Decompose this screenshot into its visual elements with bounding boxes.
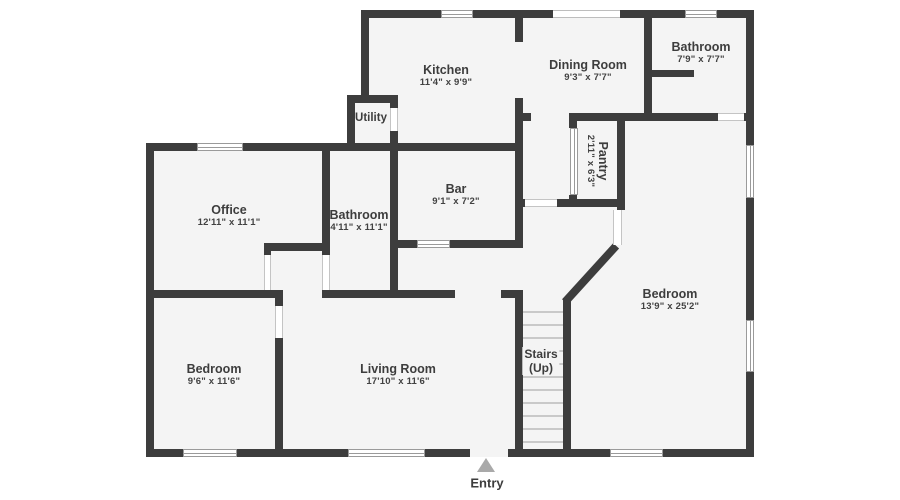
wall-bar-bottom	[390, 240, 417, 248]
wall-bedroom-top	[569, 113, 718, 121]
room-label-bedroom-right: Bedroom 13'9" x 25'2"	[641, 287, 699, 313]
wall-kitchen-dining-divider	[515, 10, 523, 42]
wall-bottom	[663, 449, 754, 457]
wall-top	[473, 10, 553, 18]
room-label-bar: Bar 9'1" x 7'2"	[432, 182, 479, 208]
wall-bottom	[425, 449, 470, 457]
room-label-bedroom-left: Bedroom 9'6" x 11'6"	[187, 362, 242, 388]
wall-right	[746, 10, 754, 145]
wall-stub	[523, 113, 531, 121]
door-office	[264, 255, 271, 290]
wall-left	[146, 143, 154, 457]
entry-label: Entry	[470, 476, 503, 491]
window-right-lower	[746, 320, 754, 372]
door-bedroom-right	[613, 210, 622, 245]
wall-kitchen-dining-divider	[515, 98, 523, 248]
wall-bedroom-top	[744, 113, 754, 121]
wall-right	[746, 372, 754, 457]
entry-arrow-icon	[477, 458, 495, 472]
window-living-room	[348, 449, 425, 457]
wall-vestibule-top	[264, 243, 330, 251]
wall-office-bottom	[146, 290, 283, 298]
window-pantry	[570, 128, 578, 195]
wall-bar-bottom	[450, 240, 523, 248]
room-label-pantry: Pantry 2'11" x 6'3"	[584, 135, 610, 187]
wall-utility-right	[390, 95, 398, 108]
wall-bedroom-living-divider	[275, 338, 283, 449]
floor-plan: Kitchen 11'4" x 9'9" Dining Room 9'3" x …	[0, 0, 900, 500]
stairs-label: Stairs (Up)	[522, 347, 559, 375]
room-label-bathroom-mid: Bathroom 4'11" x 11'1"	[329, 208, 388, 234]
room-label-dining-room: Dining Room 9'3" x 7'7"	[549, 58, 627, 84]
stair-tread	[523, 389, 563, 391]
window-office	[197, 143, 243, 151]
door-utility	[390, 108, 398, 131]
stair-tread	[523, 428, 563, 430]
wall-right	[746, 198, 754, 320]
stair-tread	[523, 441, 563, 443]
window-kitchen	[441, 10, 473, 18]
window-bedroom-left	[183, 449, 237, 457]
wall-office-kitchen-top	[243, 143, 523, 151]
room-label-bathroom-top: Bathroom 7'9" x 7'7"	[671, 40, 730, 66]
wall-top	[620, 10, 685, 18]
wall-dining-bathroom-divider	[644, 10, 652, 121]
wall-bottom	[237, 449, 348, 457]
wall-office-top	[146, 143, 197, 151]
stair-tread	[523, 415, 563, 417]
window-bathroom-top	[685, 10, 717, 18]
wall-bathroom2-left	[322, 143, 330, 255]
door-hall	[525, 199, 557, 207]
door-bathroom-top	[718, 113, 744, 121]
wall-stairs-right	[563, 298, 571, 449]
stair-tread	[523, 337, 563, 339]
wall-pantry-corner	[569, 121, 577, 128]
door-bedroom-left	[275, 306, 283, 338]
wall-hall	[515, 199, 525, 207]
room-label-kitchen: Kitchen 11'4" x 9'9"	[420, 63, 472, 89]
window-dining	[553, 10, 620, 18]
stair-tread	[523, 376, 563, 378]
wall-bedroom-living-divider	[275, 298, 283, 306]
wall-kitchen-left	[361, 10, 369, 97]
window-right-upper	[746, 145, 754, 198]
window-bar	[417, 240, 450, 248]
wall-bathroom2-right	[390, 143, 398, 298]
room-label-office: Office 12'11" x 11'1"	[198, 203, 261, 229]
wall-hall	[557, 199, 625, 207]
wall-stairs-stub	[501, 290, 523, 298]
stair-tread	[523, 324, 563, 326]
room-label-utility: Utility	[355, 111, 387, 125]
stair-tread	[523, 402, 563, 404]
wall-top	[361, 10, 441, 18]
door-bathroom2	[322, 255, 330, 290]
wall-bottom	[508, 449, 610, 457]
stair-tread	[523, 311, 563, 313]
room-label-living-room: Living Room 17'10" x 11'6"	[360, 362, 436, 388]
wall-living-top	[322, 290, 455, 298]
wall-bathroom-stub	[652, 70, 694, 77]
window-bedroom-right	[610, 449, 663, 457]
wall-pantry-right	[617, 113, 625, 210]
